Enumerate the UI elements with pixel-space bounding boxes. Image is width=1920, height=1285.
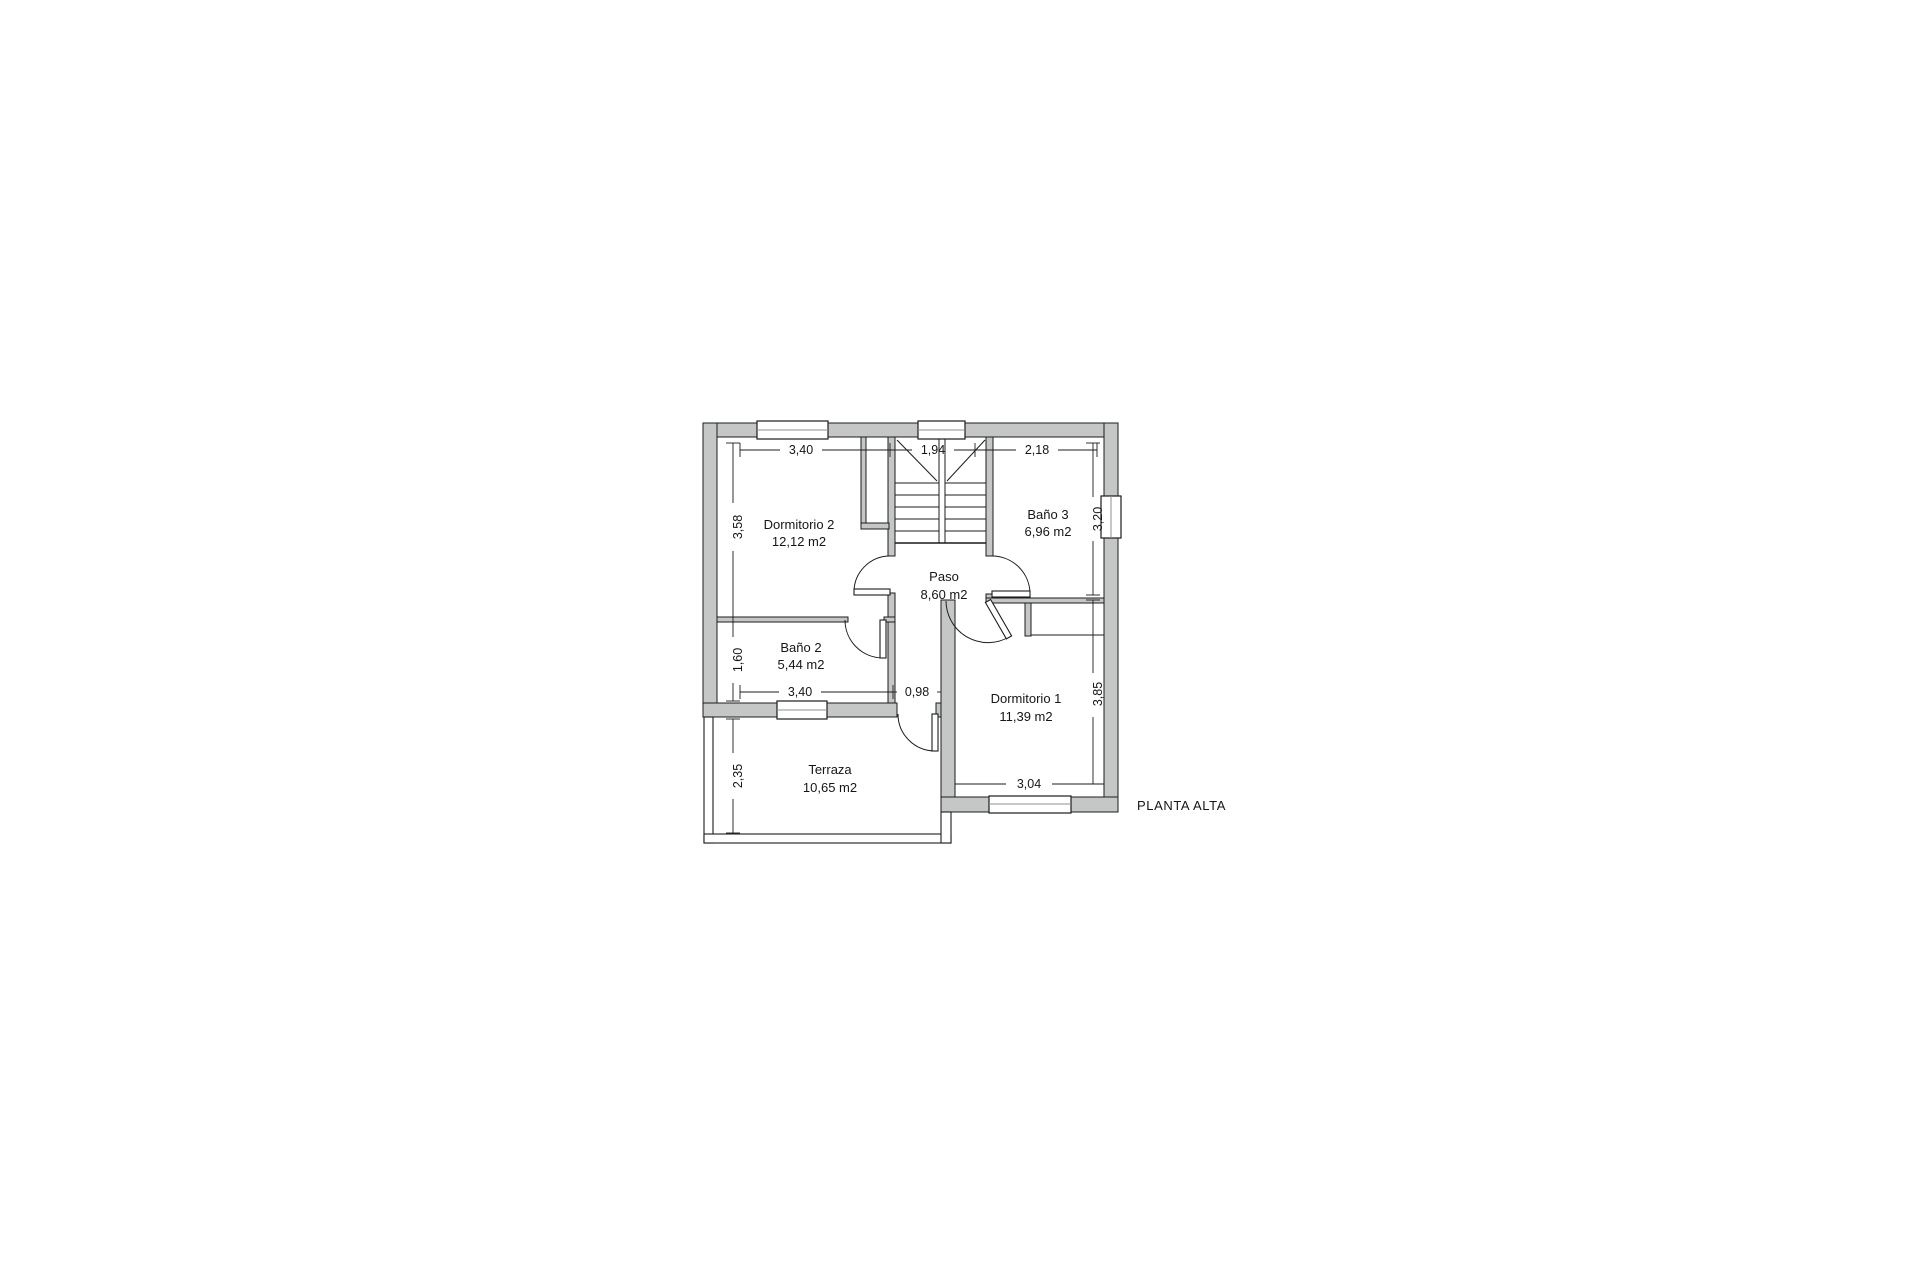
dim-bano3-height: 3,20 [1091,507,1105,531]
floor-plan-canvas: 3,40 1,94 2,18 3,58 1,60 2,35 3,40 0,98 … [0,0,1920,1285]
dim-dorm1-height: 3,85 [1091,682,1105,706]
dim-dorm1-width: 3,04 [1017,777,1041,791]
interior-walls [717,437,1104,703]
dim-bano3-width: 2,18 [1025,443,1049,457]
room-area-terraza: 10,65 m2 [803,780,857,795]
dim-stairs-width: 1,94 [921,443,945,457]
door-bano2 [845,620,886,658]
dim-terraza-door-width: 0,98 [905,685,929,699]
dim-bano2-height: 1,60 [731,648,745,672]
dim-dorm2-width: 3,40 [789,443,813,457]
window-bano2 [777,701,827,719]
room-area-bano3: 6,96 m2 [1025,524,1072,539]
room-label-bano3: Baño 3 [1027,507,1068,522]
dim-dorm2-height: 3,58 [731,515,745,539]
door-bano3 [992,556,1030,597]
room-area-paso: 8,60 m2 [921,587,968,602]
room-area-dormitorio1: 11,39 m2 [999,709,1052,724]
room-label-dormitorio2: Dormitorio 2 [764,517,835,532]
door-dormitorio1 [946,600,1012,643]
room-area-dormitorio2: 12,12 m2 [772,534,826,549]
room-label-paso: Paso [929,569,959,584]
room-label-terraza: Terraza [808,762,852,777]
stair-break-line-right [947,440,985,481]
dim-bano2-width: 3,40 [788,685,812,699]
window-dormitorio2 [757,421,828,439]
plan-title: PLANTA ALTA [1137,798,1226,813]
room-label-bano2: Baño 2 [780,640,821,655]
floor-plan: 3,40 1,94 2,18 3,58 1,60 2,35 3,40 0,98 … [0,0,1920,1280]
room-area-bano2: 5,44 m2 [778,657,825,672]
room-labels: Dormitorio 2 12,12 m2 Baño 3 6,96 m2 Pas… [764,507,1072,795]
door-terraza [898,714,938,751]
door-dormitorio2 [854,556,890,595]
dimensions: 3,40 1,94 2,18 3,58 1,60 2,35 3,40 0,98 … [726,443,1105,833]
window-dormitorio1 [989,796,1071,813]
room-label-dormitorio1: Dormitorio 1 [991,691,1062,706]
dim-terraza-height: 2,35 [731,764,745,788]
window-stairwell [918,421,965,439]
